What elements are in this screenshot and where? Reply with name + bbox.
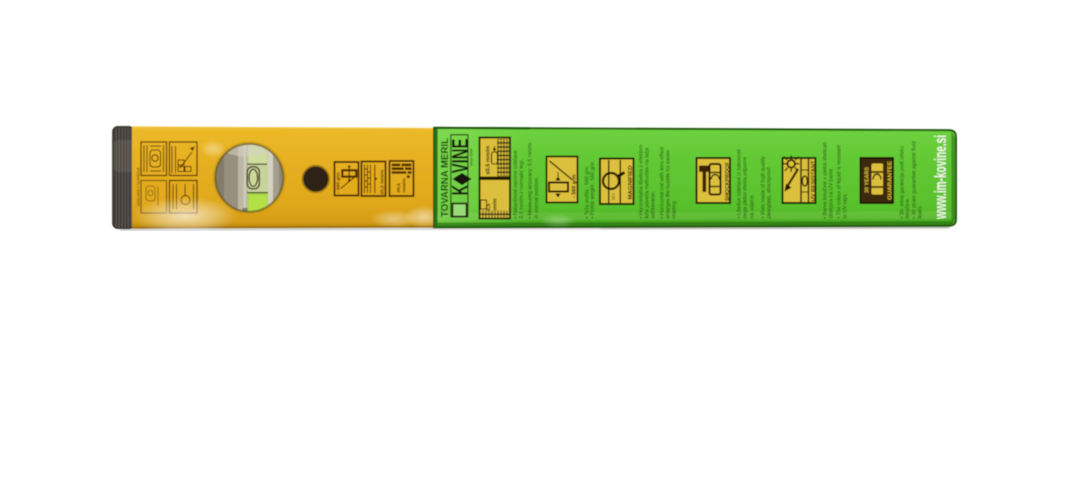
svg-text:K◆VINE: K◆VINE: [447, 139, 473, 196]
svg-text:- 560 g/m: - 560 g/m: [572, 174, 578, 198]
svg-text:0,5 mm/m v normalni legi.: 0,5 mm/m v normalni legi.: [519, 159, 525, 218]
svg-text:• Measuring accuracy: 0,5 mm/m: • Measuring accuracy: 0,5 mm/m: [528, 143, 534, 219]
svg-text:≤0,5 mm/m: ≤0,5 mm/m: [380, 170, 386, 195]
svg-text:SHOCKPROOF: SHOCKPROOF: [725, 161, 731, 201]
svg-text:nega pleksi stekla,odporne: nega pleksi stekla,odporne: [743, 157, 749, 219]
svg-text:IZDELANO V SLOVENIJI: IZDELANO V SLOVENIJI: [137, 168, 141, 206]
svg-text:• Profile weight - 560 g/m: • Profile weight - 560 g/m: [590, 162, 596, 219]
svg-text:MAGNIFIED: MAGNIFIED: [628, 166, 634, 200]
svg-text:mm/m: mm/m: [402, 178, 408, 192]
svg-text:to UV-rays.: to UV-rays.: [843, 193, 849, 219]
svg-text:30 YEARS: 30 YEARS: [865, 166, 871, 193]
svg-text:leaks.: leaks.: [918, 205, 924, 219]
svg-text:odčitavanje.: odčitavanje.: [651, 191, 657, 219]
svg-text:GUARANTEE: GUARANTEE: [888, 160, 894, 200]
svg-text:- 560 g/m: - 560 g/m: [336, 172, 342, 193]
svg-text:in normal position.: in normal position.: [534, 176, 540, 218]
svg-text:plexiglass, shockproof.: plexiglass, shockproof.: [767, 166, 773, 218]
svg-text:UV RESISTANT: UV RESISTANT: [811, 160, 817, 202]
svg-text:tekočine.: tekočine.: [905, 198, 911, 219]
svg-text:www.im-kovine.si: www.im-kovine.si: [932, 135, 950, 220]
svg-text:obstojna na UV-žarke.: obstojna na UV-žarke.: [829, 167, 835, 218]
svg-text:≤0,5 mm/m: ≤0,5 mm/m: [486, 146, 492, 175]
svg-text:na udarce.: na udarce.: [750, 194, 756, 219]
svg-text:10 x: 10 x: [612, 193, 616, 200]
svg-text:since 1904: since 1904: [470, 149, 474, 166]
svg-text:reading.: reading.: [672, 200, 678, 219]
svg-text:≤0,5: ≤0,5: [396, 183, 402, 193]
